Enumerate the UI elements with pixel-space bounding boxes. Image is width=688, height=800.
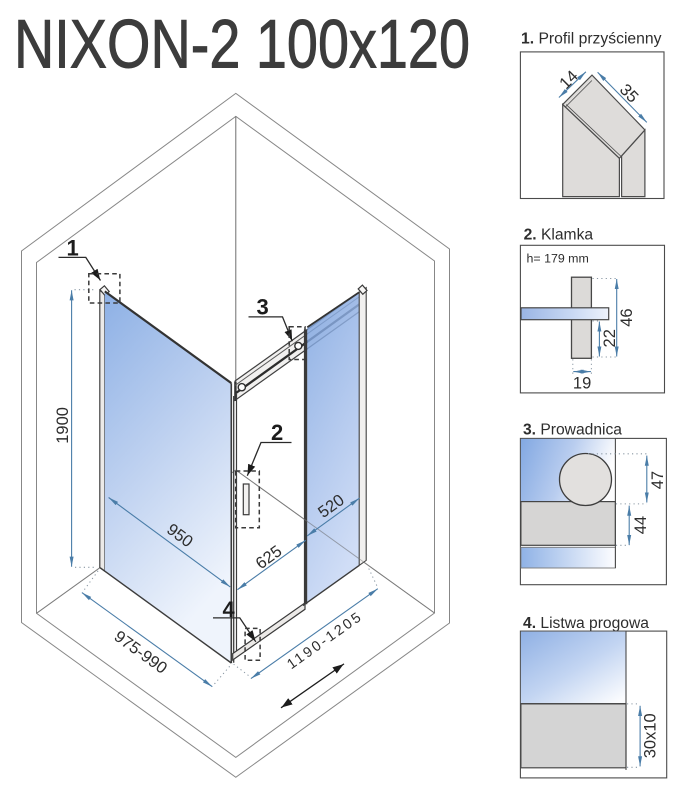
svg-text:h= 179 mm: h= 179 mm — [527, 251, 589, 265]
svg-text:1190-1205: 1190-1205 — [284, 608, 366, 672]
svg-text:1900: 1900 — [54, 407, 72, 444]
svg-text:3: 3 — [257, 295, 269, 320]
svg-text:2. Klamka: 2. Klamka — [524, 227, 594, 244]
svg-text:4. Listwa progowa: 4. Listwa progowa — [523, 615, 649, 632]
svg-text:2: 2 — [271, 420, 283, 445]
svg-text:NIXON-2 100x120: NIXON-2 100x120 — [14, 6, 470, 83]
svg-text:30x10: 30x10 — [642, 713, 660, 758]
svg-text:1. Profil przyścienny: 1. Profil przyścienny — [521, 31, 662, 48]
svg-text:46: 46 — [618, 308, 636, 326]
svg-text:44: 44 — [632, 516, 650, 534]
svg-text:47: 47 — [649, 471, 667, 489]
svg-text:625: 625 — [253, 542, 286, 573]
svg-text:19: 19 — [573, 375, 591, 393]
svg-text:3. Prowadnica: 3. Prowadnica — [523, 421, 622, 438]
svg-text:22: 22 — [601, 329, 619, 347]
